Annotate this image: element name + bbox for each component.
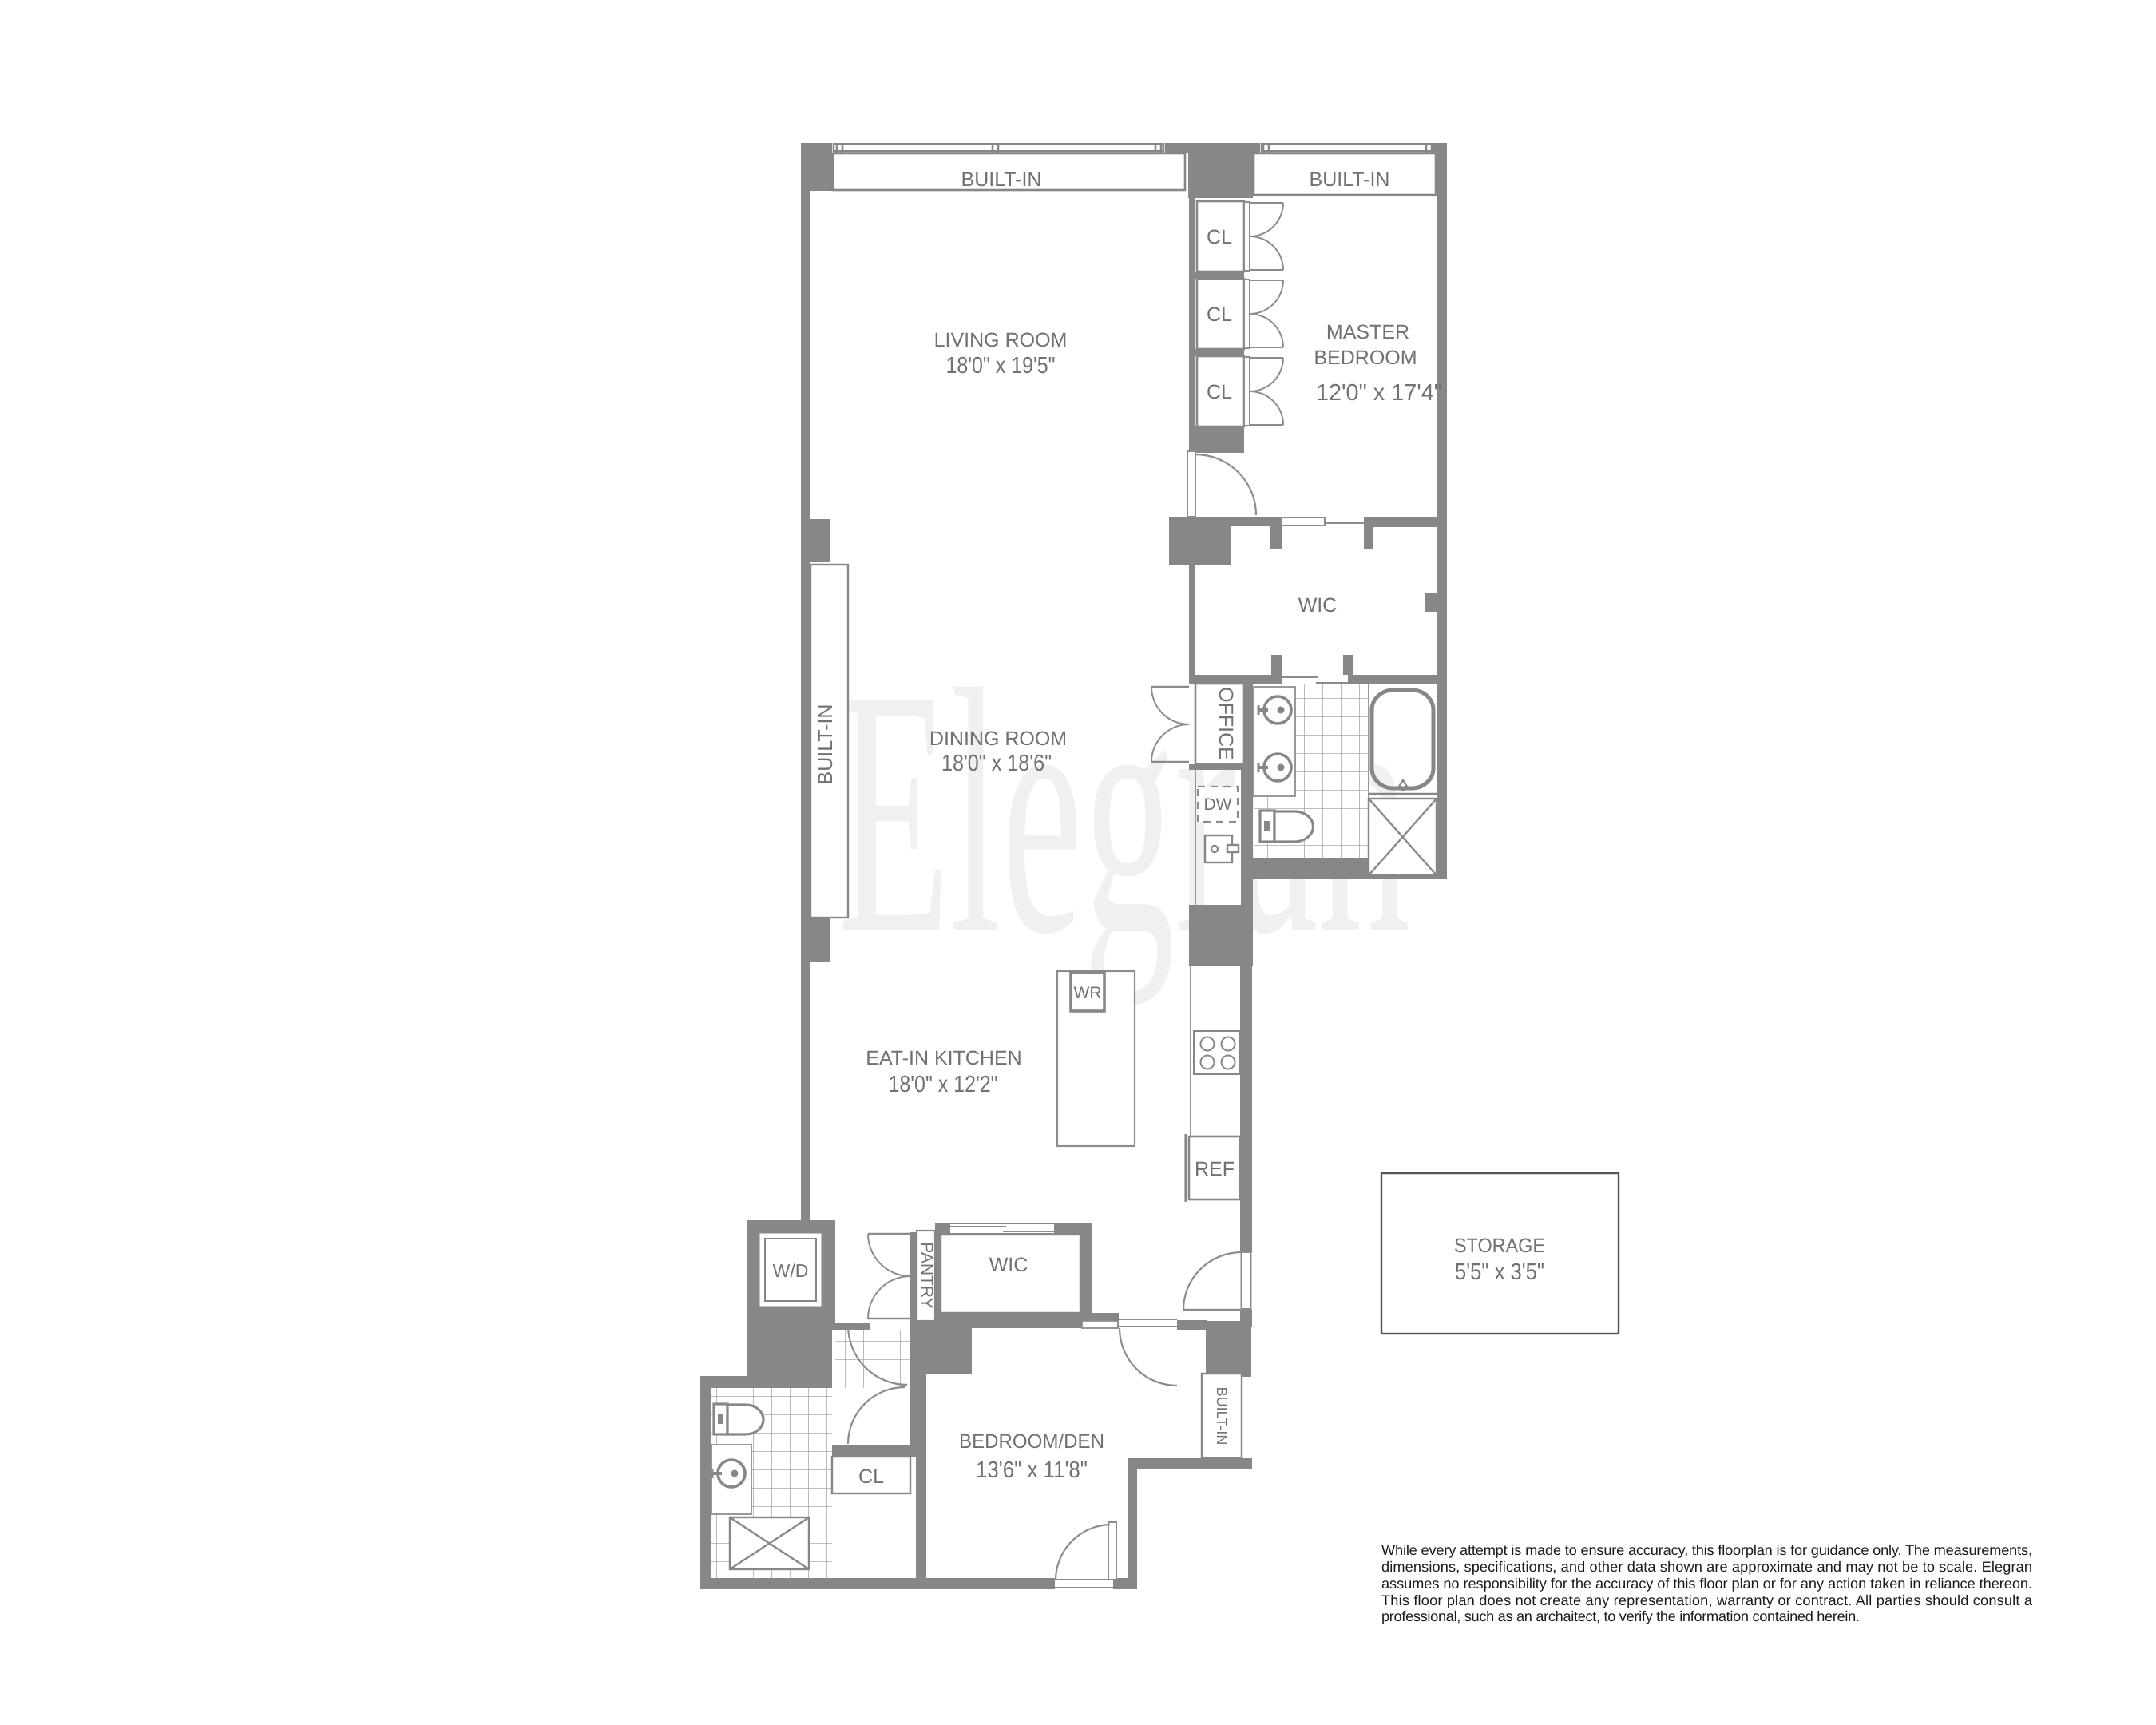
svg-text:13'6" x 11'8": 13'6" x 11'8" — [976, 1457, 1088, 1483]
svg-text:PANTRY: PANTRY — [917, 1242, 936, 1308]
svg-text:While every attempt is made to: While every attempt is made to ensure ac… — [1381, 1542, 2032, 1558]
svg-text:CL: CL — [1207, 303, 1232, 326]
svg-text:BUILT-IN: BUILT-IN — [1214, 1387, 1230, 1445]
svg-text:assumes no responsibility for: assumes no responsibility for the accura… — [1381, 1576, 2032, 1592]
svg-text:LIVING ROOM: LIVING ROOM — [934, 329, 1068, 351]
svg-text:OFFICE: OFFICE — [1215, 687, 1237, 760]
svg-text:CL: CL — [1207, 226, 1232, 248]
svg-text:CL: CL — [1207, 381, 1232, 403]
svg-text:dimensions, specifications, an: dimensions, specifications, and other da… — [1381, 1559, 2032, 1575]
svg-text:WIC: WIC — [1298, 594, 1338, 617]
svg-text:DINING ROOM: DINING ROOM — [929, 728, 1067, 750]
svg-text:18'0" x 18'6": 18'0" x 18'6" — [941, 751, 1052, 776]
svg-text:W/D: W/D — [773, 1260, 809, 1281]
svg-text:BUILT-IN: BUILT-IN — [814, 704, 837, 785]
svg-text:BEDROOM: BEDROOM — [1314, 347, 1417, 369]
svg-text:12'0" x 17'4": 12'0" x 17'4" — [1316, 380, 1442, 406]
svg-text:BUILT-IN: BUILT-IN — [961, 169, 1042, 191]
svg-text:CL: CL — [858, 1465, 884, 1488]
svg-text:18'0" x 12'2": 18'0" x 12'2" — [889, 1072, 998, 1097]
svg-text:5'5" x 3'5": 5'5" x 3'5" — [1455, 1259, 1544, 1285]
svg-text:professional, such as an archa: professional, such as an archaitect, to … — [1381, 1608, 1860, 1624]
svg-text:BUILT-IN: BUILT-IN — [1310, 169, 1390, 191]
svg-text:DW: DW — [1204, 795, 1232, 814]
svg-text:WR: WR — [1074, 984, 1102, 1002]
svg-text:This floor plan does not creat: This floor plan does not create any repr… — [1381, 1592, 2033, 1608]
svg-text:REF: REF — [1195, 1158, 1235, 1180]
svg-text:18'0" x 19'5": 18'0" x 19'5" — [946, 353, 1056, 379]
svg-text:EAT-IN KITCHEN: EAT-IN KITCHEN — [866, 1047, 1021, 1069]
svg-text:WIC: WIC — [989, 1254, 1028, 1276]
svg-text:BEDROOM/DEN: BEDROOM/DEN — [959, 1430, 1104, 1453]
svg-text:STORAGE: STORAGE — [1454, 1235, 1545, 1257]
svg-text:MASTER: MASTER — [1326, 321, 1409, 343]
